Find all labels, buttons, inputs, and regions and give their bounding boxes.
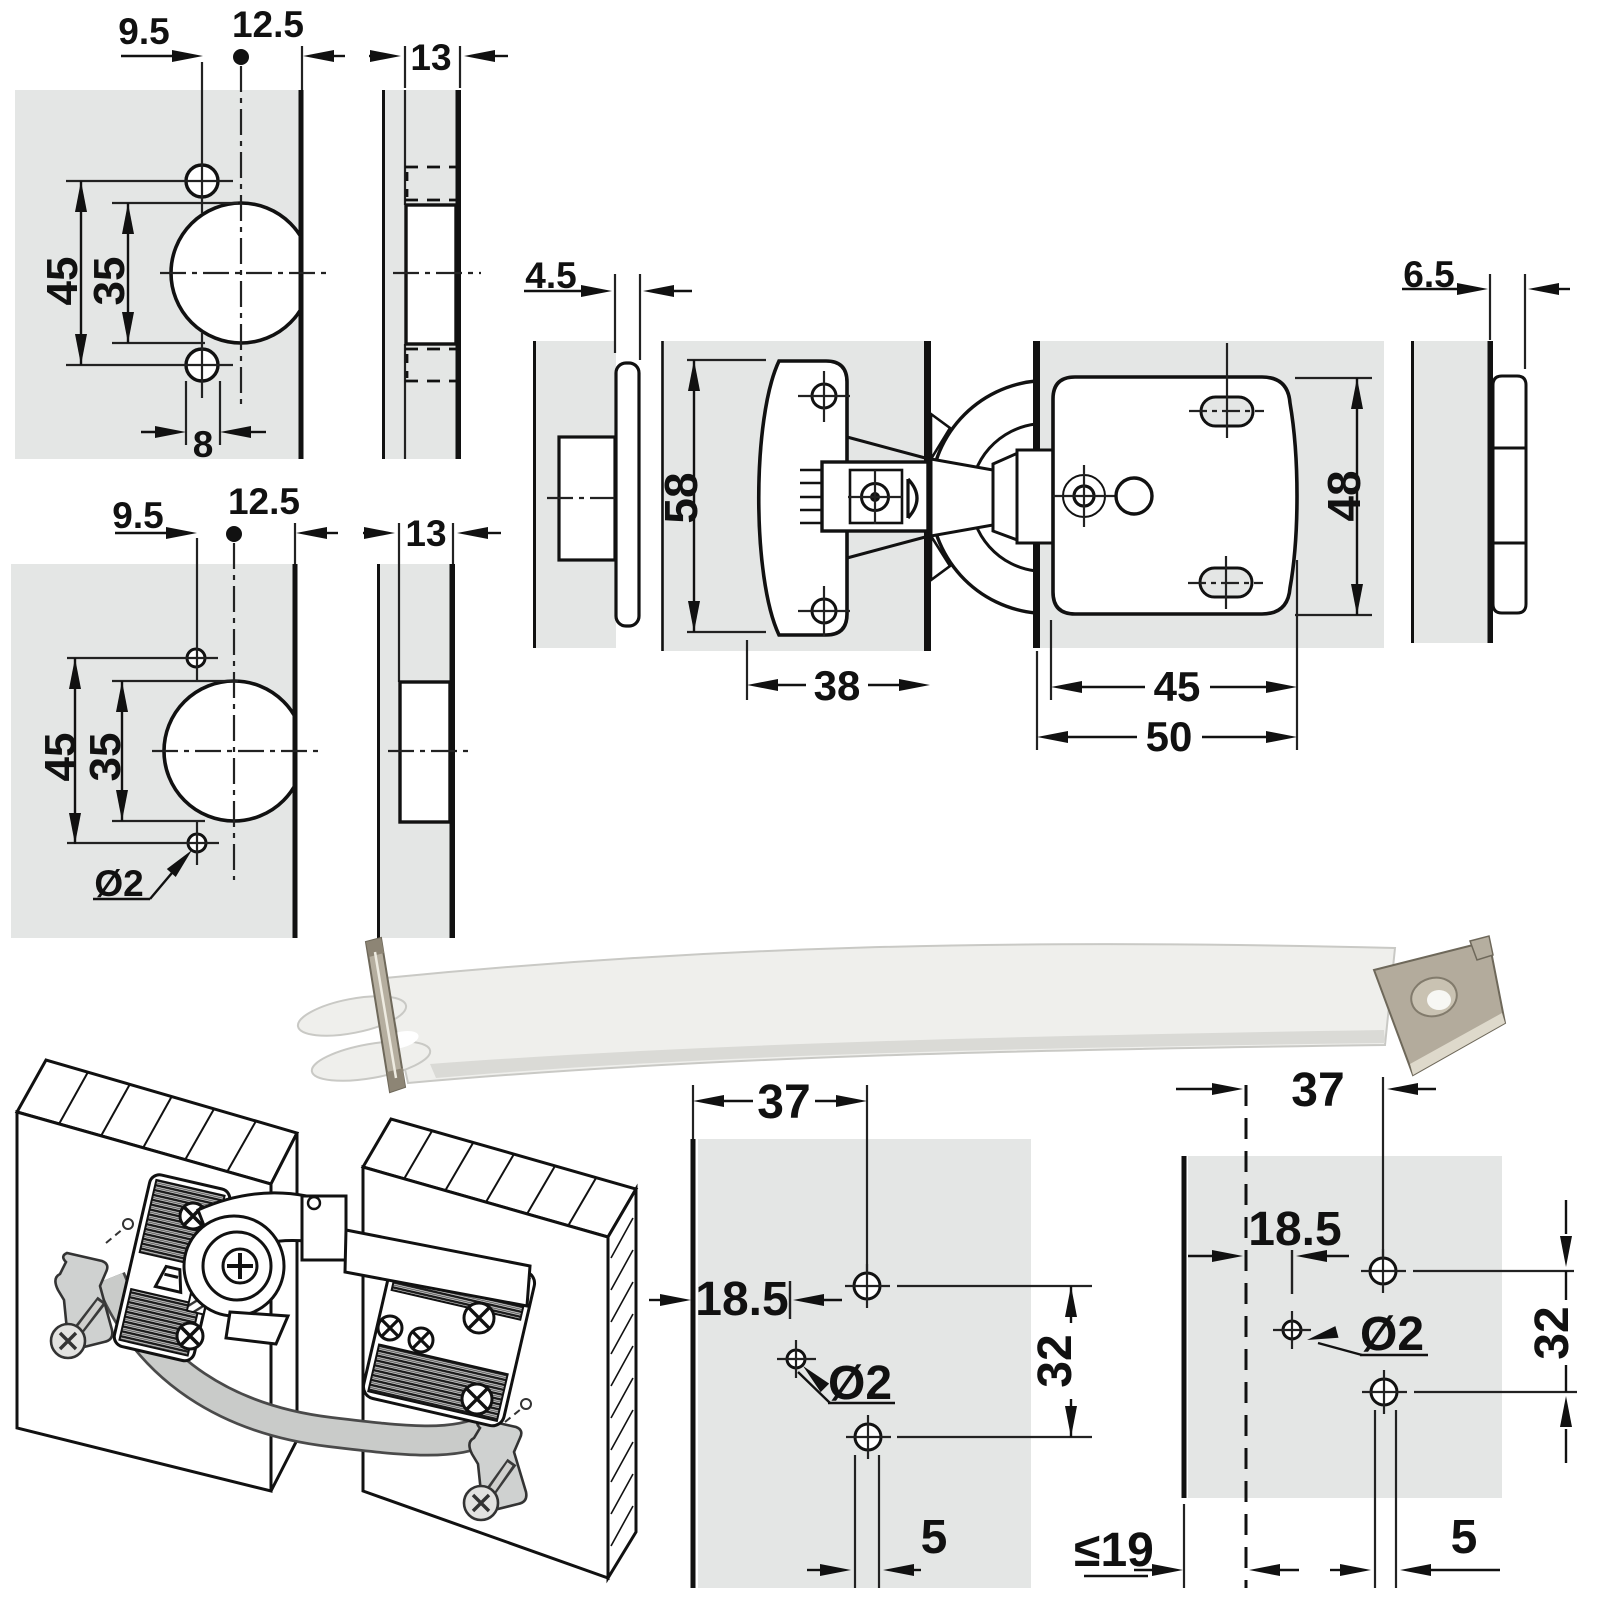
svg-text:18.5: 18.5 [695,1273,788,1326]
svg-text:45: 45 [36,733,85,782]
svg-text:32: 32 [1526,1306,1579,1359]
svg-text:9.5: 9.5 [112,495,163,536]
svg-text:12.5: 12.5 [232,4,304,45]
svg-text:5: 5 [921,1511,948,1564]
svg-text:18.5: 18.5 [1248,1203,1341,1256]
svg-text:37: 37 [1291,1064,1344,1117]
svg-text:45: 45 [1154,663,1201,710]
svg-text:37: 37 [757,1076,810,1129]
svg-text:48: 48 [1318,470,1370,521]
svg-text:58: 58 [655,472,707,523]
svg-text:13: 13 [410,37,451,78]
svg-text:13: 13 [405,513,446,554]
svg-text:35: 35 [81,733,130,782]
svg-text:Ø2: Ø2 [1360,1308,1424,1361]
svg-text:32: 32 [1029,1334,1082,1387]
svg-text:12.5: 12.5 [228,481,300,522]
svg-text:8: 8 [193,424,214,465]
svg-text:5: 5 [1451,1511,1478,1564]
svg-text:9.5: 9.5 [118,11,169,52]
svg-text:50: 50 [1146,713,1193,760]
svg-text:35: 35 [85,257,134,306]
svg-text:45: 45 [38,257,87,306]
svg-text:38: 38 [814,662,861,709]
